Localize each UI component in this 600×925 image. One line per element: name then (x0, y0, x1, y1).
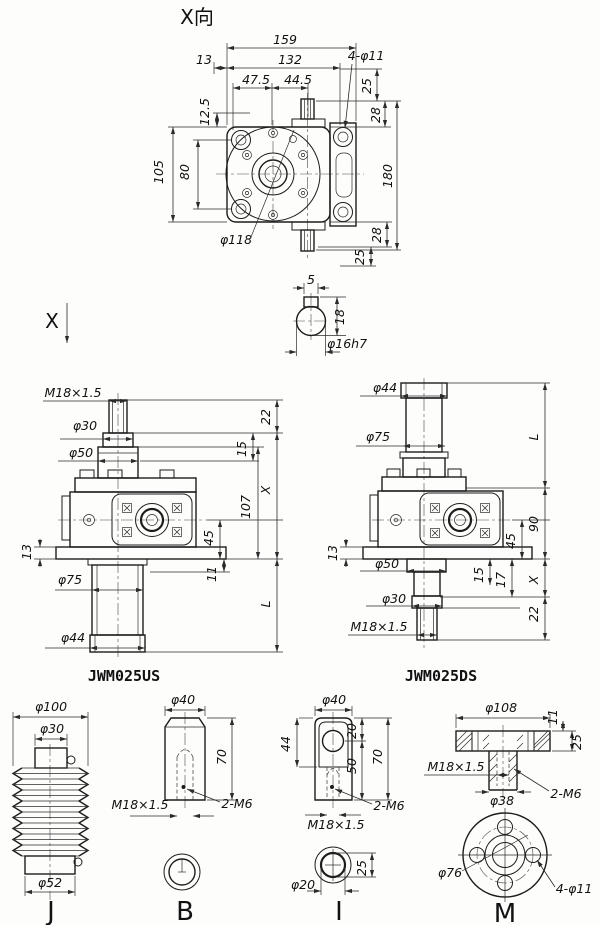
drawing-page: X向 159 13 132 47.5 44.5 4-φ11 25 28 (0, 0, 600, 925)
m-phi76-label: φ76 (438, 865, 462, 880)
dim-phi16h7: φ16h7 (327, 336, 367, 351)
dim-47-5: 47.5 (242, 72, 270, 87)
i-part-label: I (335, 897, 343, 925)
us-phi75-label: φ75 (58, 572, 82, 587)
j-phi100-label: φ100 (35, 699, 67, 714)
us-base-flange (56, 547, 226, 559)
j-part-label: J (45, 897, 55, 925)
dim-18: 18 (332, 309, 347, 325)
m-m6-leader (514, 769, 549, 791)
x-arrow-label: X (45, 309, 59, 333)
top-view: X向 159 13 132 47.5 44.5 4-φ11 25 28 (151, 5, 401, 266)
m-phi38-label: φ38 (490, 793, 514, 808)
dim-28-top: 28 (368, 107, 383, 123)
us-dim-13: 13 (19, 544, 34, 560)
part-i: φ40 44 20 50 70 2-M6 M18×1.5 25 φ20 I (278, 692, 405, 925)
us-phi44-label: φ44 (61, 630, 85, 645)
view-direction-title: X向 (180, 5, 214, 29)
ds-model-name: JWM025DS (405, 667, 477, 685)
b-thread-label: M18×1.5 (111, 797, 168, 812)
dim-25-bot: 25 (352, 249, 367, 265)
us-thread-label: M18×1.5 (44, 385, 101, 400)
gearbox-body-top (227, 127, 330, 222)
dim-44-5: 44.5 (284, 72, 312, 87)
dim-80: 80 (177, 164, 192, 180)
x-direction-arrow: X (45, 303, 67, 343)
dim-28-bot: 28 (369, 227, 384, 243)
j-phi30-label: φ30 (40, 721, 64, 736)
technical-drawing: X向 159 13 132 47.5 44.5 4-φ11 25 28 (0, 0, 600, 925)
i-dim-70: 70 (370, 749, 385, 765)
us-protect-tube (92, 565, 143, 635)
i-dim-25: 25 (354, 860, 369, 876)
ds-dim-15: 15 (471, 567, 486, 583)
dim-159: 159 (273, 32, 297, 47)
dim-key-5: 5 (307, 272, 315, 287)
us-dim-x: X (258, 485, 273, 495)
us-dim-107: 107 (238, 495, 253, 519)
part-j-bellows: φ100 φ30 φ52 J (13, 699, 88, 925)
dim-132: 132 (278, 52, 302, 67)
part-m-flange: φ108 11 25 M18×1.5 φ38 2-M6 φ76 4-φ11 M (424, 700, 592, 925)
ds-phi44-label: φ44 (373, 380, 397, 395)
dim-25-top: 25 (359, 78, 374, 94)
us-phi30-label: φ30 (73, 418, 97, 433)
m-m6-label: 2-M6 (550, 786, 581, 801)
dim-4-phi11: 4-φ11 (348, 48, 385, 63)
m-dim-11: 11 (545, 709, 560, 725)
us-dim-11: 11 (204, 566, 219, 582)
i-m6-label: 2-M6 (373, 798, 404, 813)
b-m6-label: 2-M6 (221, 796, 252, 811)
m-part-label: M (494, 899, 516, 925)
dim-105: 105 (151, 160, 166, 184)
ds-dim-45: 45 (503, 533, 518, 549)
us-phi50-label: φ50 (69, 445, 93, 460)
us-dim-15: 15 (234, 441, 249, 457)
i-m6-leader (335, 789, 372, 804)
shaft-key-section: 5 18 φ16h7 (285, 272, 367, 356)
ds-phi75-label: φ75 (366, 429, 390, 444)
us-dim-45: 45 (201, 530, 216, 546)
i-dim-50: 50 (344, 758, 359, 774)
us-housing (70, 492, 196, 547)
ds-dim-13: 13 (325, 545, 340, 561)
dim-phi118: φ118 (220, 232, 252, 247)
us-top-plate (75, 478, 196, 492)
us-model-name: JWM025US (88, 667, 160, 685)
ds-dim-x: X (526, 575, 541, 585)
ds-dim-90: 90 (526, 516, 541, 532)
us-face-plate (112, 494, 192, 545)
m-4phi11-label: 4-φ11 (556, 881, 593, 896)
ds-housing (378, 491, 503, 547)
ds-dim-l: L (526, 433, 541, 440)
m-thread-label: M18×1.5 (427, 759, 484, 774)
ds-thread-label: M18×1.5 (350, 619, 407, 634)
jwm025ds-view: φ44 φ75 13 φ50 φ30 M18×1.5 L 90 45 15 17… (325, 378, 550, 685)
b-phi40-label: φ40 (171, 692, 195, 707)
leader-4phi11 (345, 64, 352, 128)
us-dim-22: 22 (258, 409, 273, 425)
i-thread-label: M18×1.5 (307, 817, 364, 832)
m-phi76-leader (462, 835, 528, 871)
m-phi108-label: φ108 (485, 700, 517, 715)
b-dim-70: 70 (214, 749, 229, 765)
part-b: φ40 70 M18×1.5 2-M6 B (111, 692, 252, 925)
i-dim-44: 44 (278, 736, 293, 752)
dim-13: 13 (196, 52, 212, 67)
jwm025us-view: M18×1.5 φ30 φ50 φ75 φ44 13 22 15 X 107 4… (19, 385, 283, 685)
i-phi20-label: φ20 (291, 877, 315, 892)
ds-dim-22: 22 (526, 606, 541, 622)
ds-phi30-label: φ30 (382, 591, 406, 606)
b-part-label: B (176, 897, 194, 925)
dim-12-5: 12.5 (197, 98, 212, 126)
m-dim-25: 25 (569, 734, 584, 750)
j-phi52-label: φ52 (38, 875, 62, 890)
us-dim-l: L (258, 600, 273, 607)
dim-180: 180 (380, 164, 395, 188)
i-phi40-label: φ40 (322, 692, 346, 707)
ds-phi50-label: φ50 (375, 556, 399, 571)
i-dim-20: 20 (344, 723, 359, 739)
ds-dim-17: 17 (493, 572, 508, 588)
